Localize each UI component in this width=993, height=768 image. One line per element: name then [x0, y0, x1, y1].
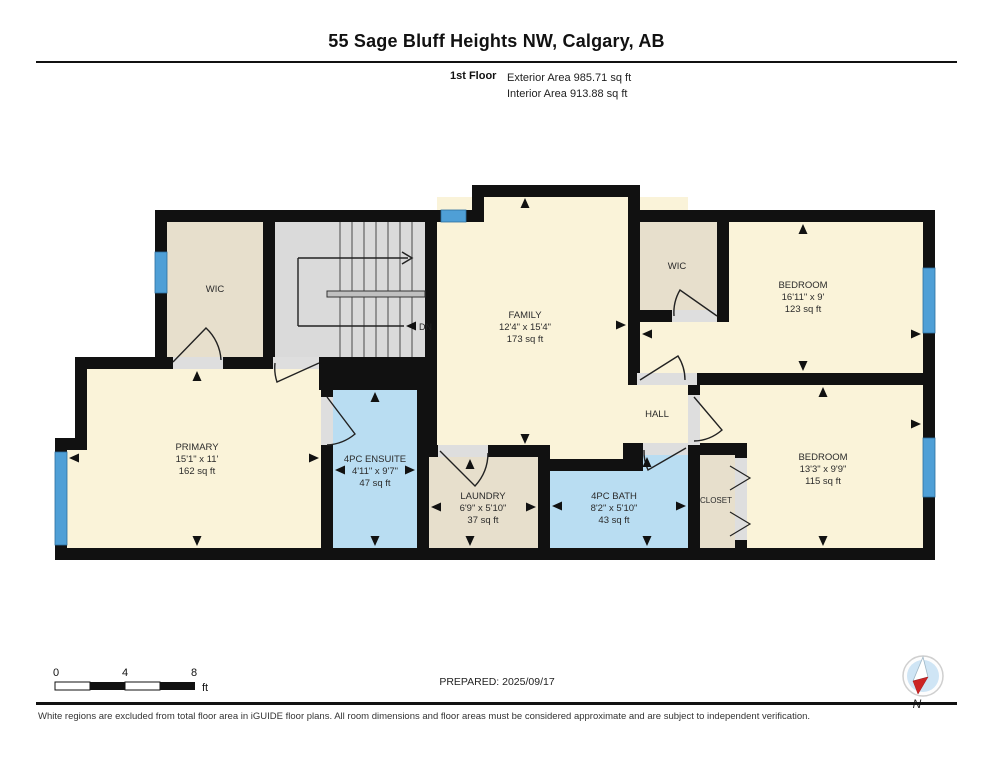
label-bedroom-upper-name: BEDROOM — [778, 280, 827, 291]
label-bedroom-lower-name: BEDROOM — [798, 452, 847, 463]
scale-tick-0: 0 — [53, 667, 59, 679]
label-bedroom-upper-dims: 16'11" x 9' — [782, 292, 825, 303]
label-closet: CLOSET — [700, 496, 732, 505]
label-ensuite-area: 47 sq ft — [359, 478, 391, 489]
label-wic-right: WIC — [668, 261, 687, 272]
scale-bar: 0 4 8 ft — [53, 667, 208, 694]
label-primary-name: PRIMARY — [175, 442, 219, 453]
label-family-area: 173 sq ft — [507, 334, 544, 345]
disclaimer-text: White regions are excluded from total fl… — [38, 711, 963, 722]
window-bedroom-upper — [923, 268, 935, 333]
label-family-name: FAMILY — [508, 310, 542, 321]
label-laundry-name: LAUNDRY — [460, 491, 506, 502]
label-ensuite-name: 4PC ENSUITE — [344, 454, 406, 465]
label-bedroom-lower-dims: 13'3" x 9'9" — [800, 464, 847, 475]
label-primary-area: 162 sq ft — [179, 466, 216, 477]
scale-unit-label: ft — [202, 682, 208, 694]
scale-tick-4: 4 — [122, 667, 128, 679]
label-bedroom-lower-area: 115 sq ft — [805, 476, 841, 487]
label-hall: HALL — [645, 409, 669, 420]
stairs-landing-edge — [327, 291, 425, 297]
label-bath-dims: 8'2" x 5'10" — [591, 503, 638, 514]
label-laundry-dims: 6'9" x 5'10" — [460, 503, 507, 514]
label-bath-area: 43 sq ft — [598, 515, 630, 526]
label-primary-dims: 15'1" x 11' — [176, 454, 219, 465]
label-family-dims: 12'4" x 15'4" — [499, 322, 551, 333]
scale-tick-8: 8 — [191, 667, 197, 679]
label-laundry-area: 37 sq ft — [467, 515, 499, 526]
footer-divider — [36, 702, 957, 705]
label-bath-name: 4PC BATH — [591, 491, 637, 502]
window-primary — [55, 452, 67, 545]
window-bedroom-lower — [923, 438, 935, 497]
label-ensuite-dims: 4'11" x 9'7" — [352, 466, 398, 477]
floor-plan-drawing: DN FAMILY 12'4" x 15'4" 173 sq ft BEDROO… — [0, 0, 993, 768]
window-top — [441, 210, 466, 222]
floor-plan-page: 55 Sage Bluff Heights NW, Calgary, AB 1s… — [0, 0, 993, 768]
stairs-down-label: DN — [419, 322, 432, 332]
prepared-date: PREPARED: 2025/09/17 — [439, 676, 555, 688]
label-bedroom-upper-area: 123 sq ft — [785, 304, 822, 315]
label-wic-left: WIC — [206, 284, 225, 295]
window-wic-left — [155, 252, 167, 293]
